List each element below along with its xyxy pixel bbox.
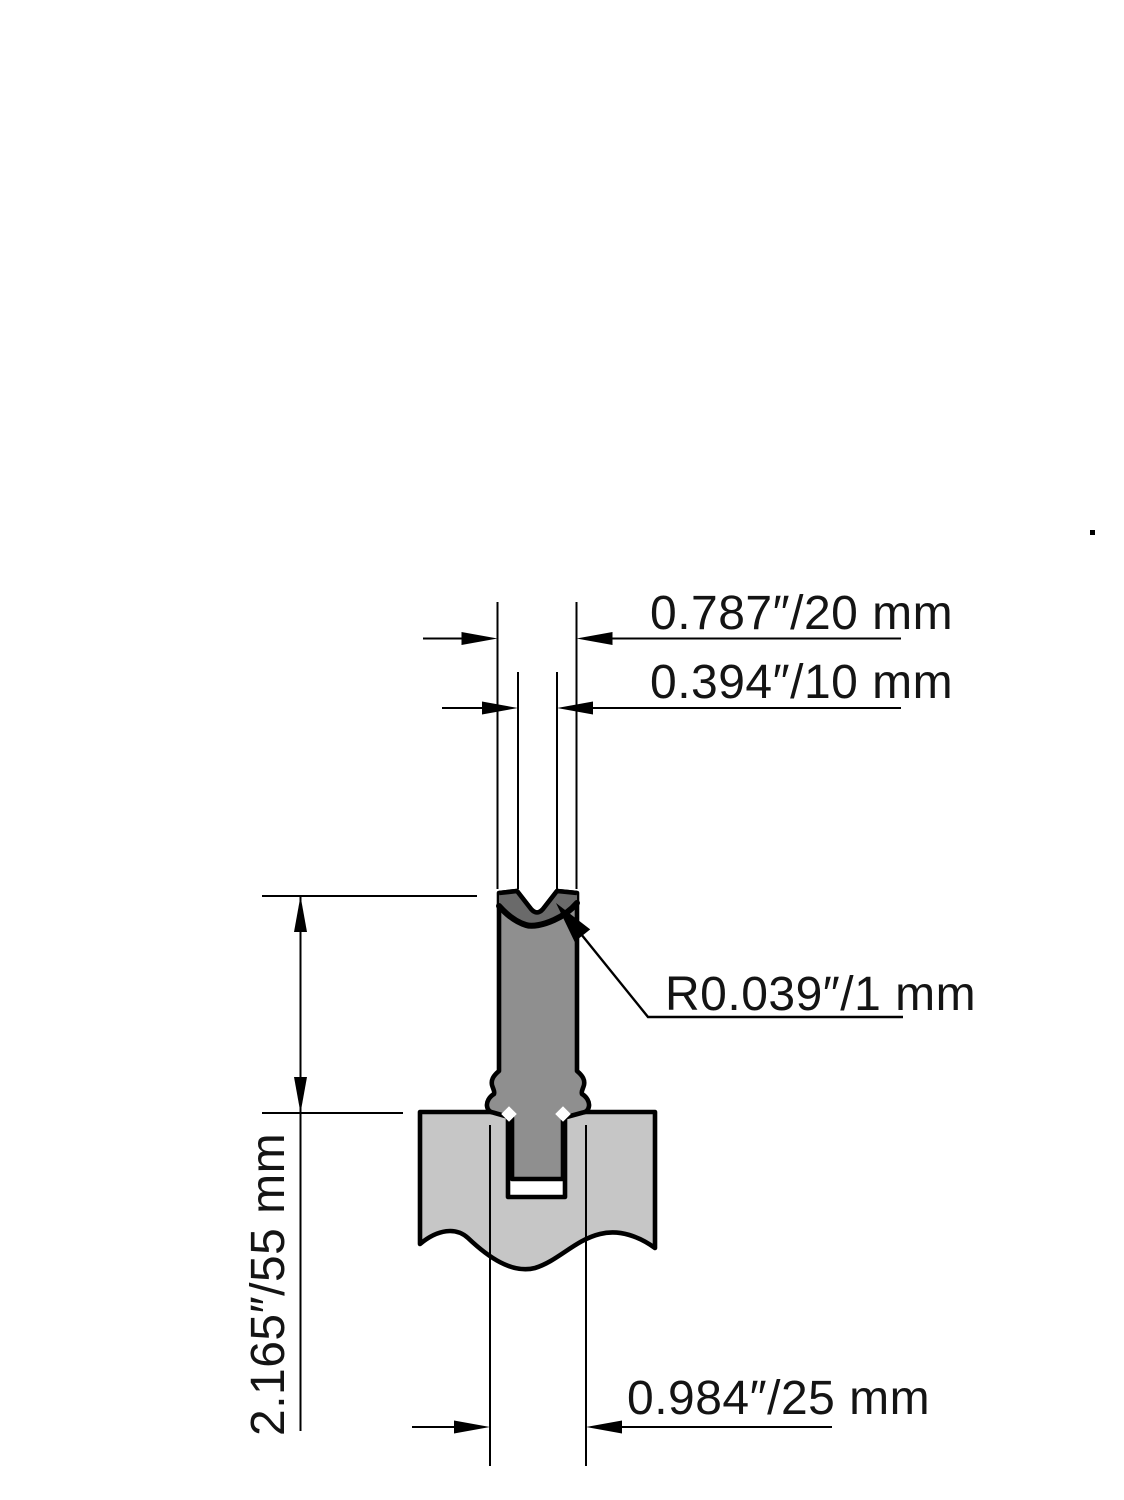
body-height-label: 2.165″/55 mm — [242, 1133, 295, 1436]
tang-width-label: 0.984″/25 mm — [627, 1372, 930, 1425]
arrowhead — [294, 896, 307, 932]
arrowhead — [557, 702, 593, 715]
arrowhead — [577, 632, 613, 645]
arrowhead — [482, 702, 518, 715]
arrowhead — [294, 1077, 307, 1113]
v-opening-label: 0.394″/10 mm — [650, 656, 953, 709]
drawing-canvas: 0.787″/20 mm 0.394″/10 mm 2.165″/55 mm 0… — [0, 0, 1124, 1500]
drawing-page: 0.787″/20 mm 0.394″/10 mm 2.165″/55 mm 0… — [0, 0, 1124, 1500]
body-width-label: 0.787″/20 mm — [650, 587, 953, 640]
body-width-dimension: 0.787″/20 mm — [423, 587, 953, 889]
v-opening-dimension: 0.394″/10 mm — [442, 656, 953, 889]
arrowhead — [454, 1421, 490, 1434]
edge-radius-leader: R0.039″/1 mm — [548, 897, 976, 1021]
arrowhead — [586, 1421, 622, 1434]
print-speck — [1090, 530, 1095, 535]
arrowhead — [462, 632, 498, 645]
edge-radius-label: R0.039″/1 mm — [665, 968, 976, 1021]
